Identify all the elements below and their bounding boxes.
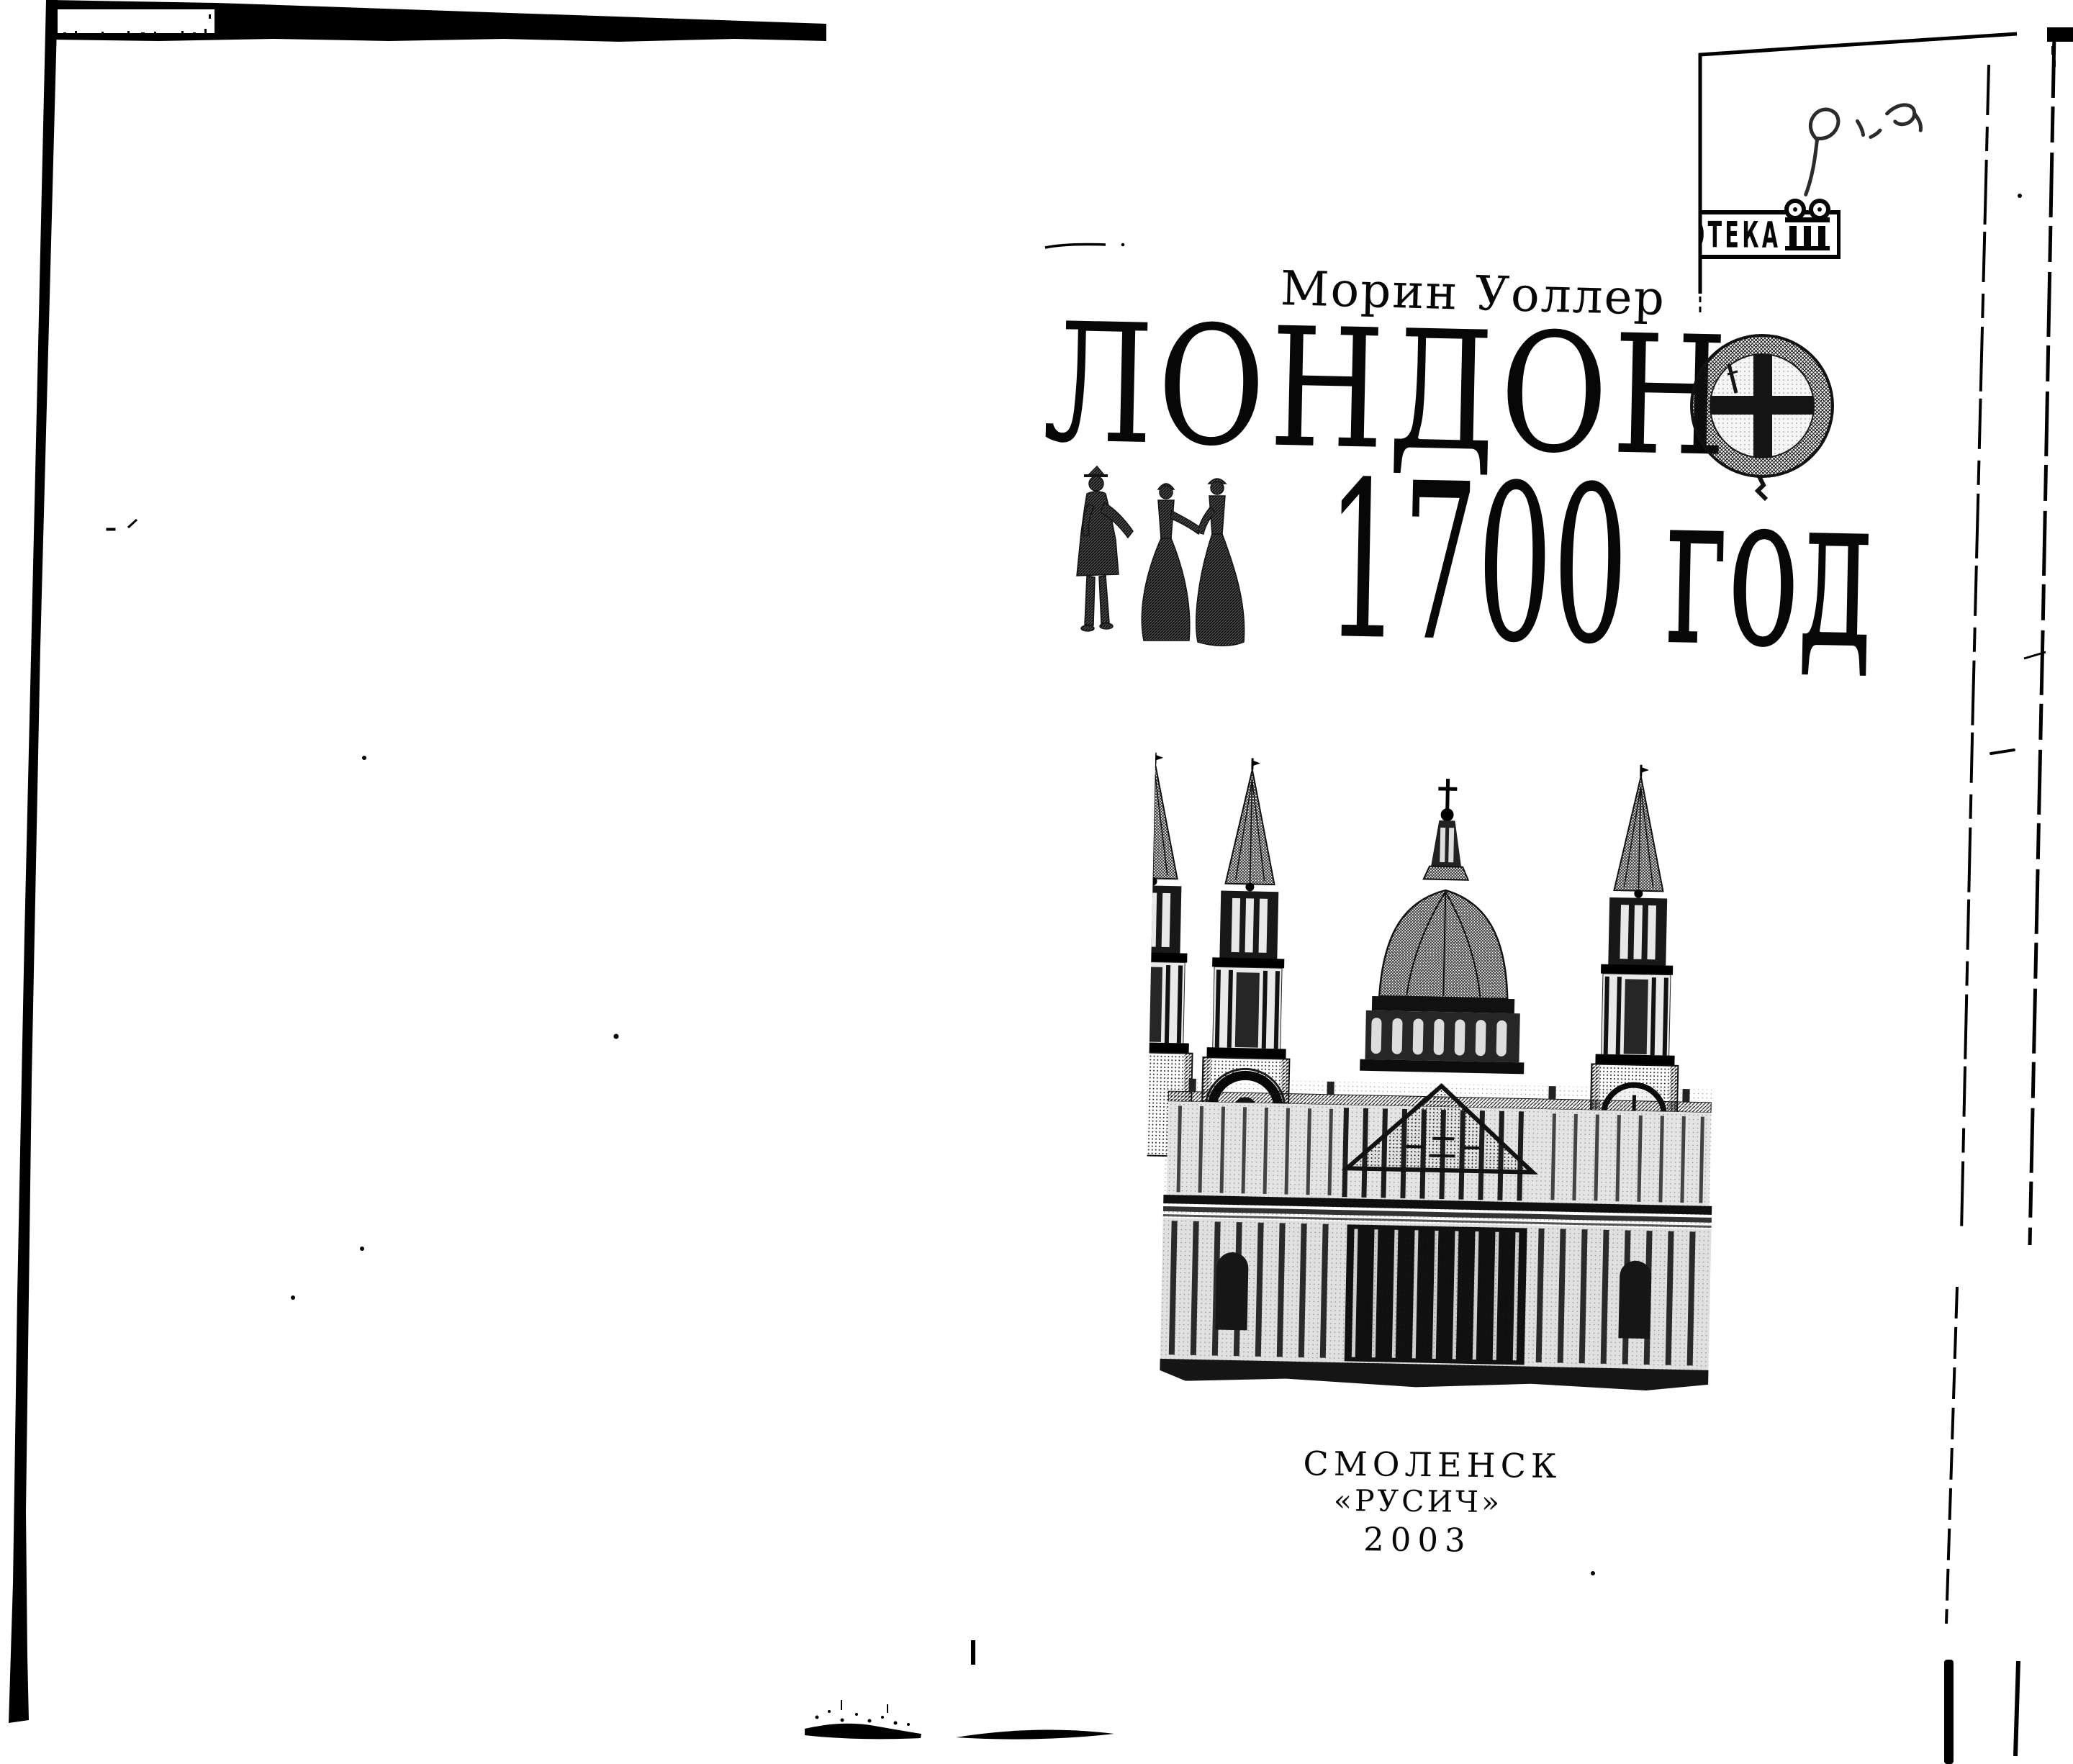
figure-lady-1 [1142, 484, 1201, 641]
seal-tail [1758, 476, 1766, 499]
cathedral-engraving [1142, 753, 1740, 1398]
column-icon [1784, 199, 1831, 250]
seal-medallion [1679, 331, 1846, 508]
imprint-year: 2003 [1302, 1522, 1532, 1557]
imprint-publisher: «РУСИЧ» [1303, 1485, 1533, 1517]
period-figures-illustration [1057, 461, 1294, 655]
figure-man [1077, 466, 1133, 631]
imprint-block: СМОЛЕНСК «РУСИЧ» 2003 [1302, 1447, 1534, 1557]
dome [1360, 777, 1530, 1075]
library-stamp-text: ОТЕКА [1699, 214, 1781, 255]
title-page-content: ОТЕКА Морин Уоллер ЛОНДОН [0, 0, 2073, 1764]
scanned-title-page: ОТЕКА Морин Уоллер ЛОНДОН [0, 0, 2073, 1764]
figure-lady-2 [1196, 479, 1245, 646]
facade [1160, 1078, 1715, 1393]
imprint-city: СМОЛЕНСК [1303, 1447, 1533, 1482]
handwritten-note [1779, 80, 1942, 210]
